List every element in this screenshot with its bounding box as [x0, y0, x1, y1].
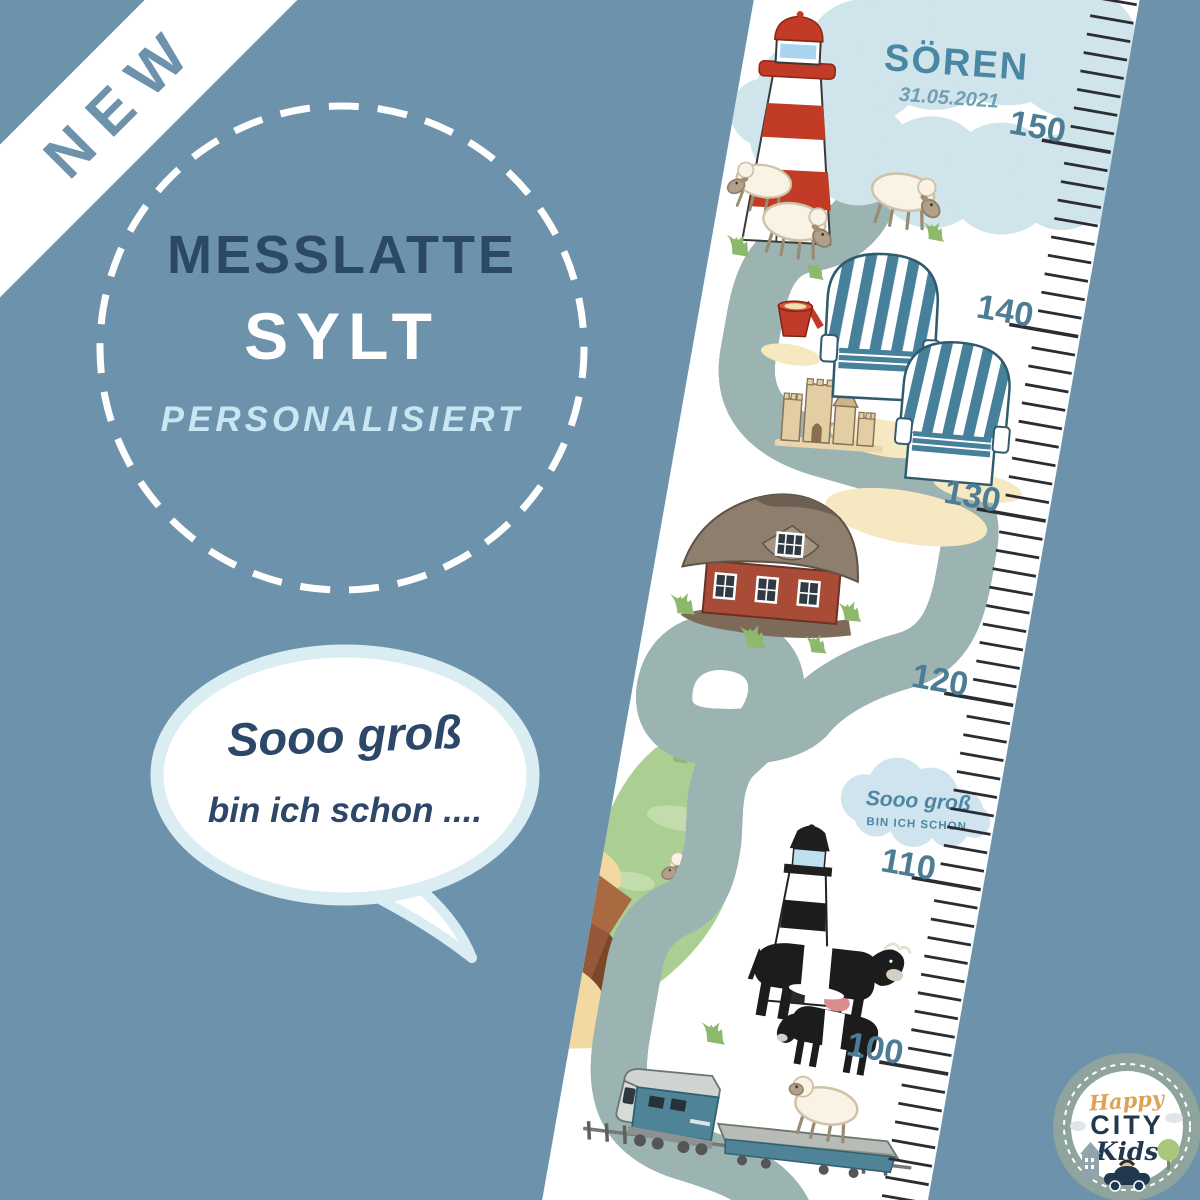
speech-bubble-line2: bin ich schon .... — [208, 791, 482, 830]
speech-bubble-body — [157, 651, 533, 899]
beach-chair-2 — [892, 338, 1017, 487]
ruler-number: 110 — [878, 841, 939, 888]
brand-logo: Happy CITY Kids — [1046, 1046, 1200, 1200]
title-block: MESSLATTE SYLT PERSONALISIERT — [112, 224, 572, 440]
growth-chart-strip: SÖREN 31.05.2021 — [531, 0, 1148, 1200]
logo-cloud-icon — [1070, 1121, 1086, 1131]
sand-bucket — [777, 300, 824, 338]
personalised-label: PERSONALISIERT — [112, 400, 572, 440]
product-image: MESSLATTE SYLT PERSONALISIERT NEW Sooo g… — [0, 0, 1200, 1200]
product-subtitle: SYLT — [112, 298, 572, 374]
ruler-number: 120 — [909, 657, 971, 704]
marker-cloud: Sooo groß BIN ICH SCHON — [834, 749, 999, 860]
logo-city-label: CITY — [1090, 1110, 1164, 1140]
product-title: MESSLATTE — [112, 224, 572, 286]
logo-cloud-icon — [1165, 1113, 1183, 1123]
growth-chart-art: SÖREN 31.05.2021 — [531, 0, 1148, 1200]
grass-tuft — [698, 1019, 728, 1044]
speech-bubble: Sooo groß bin ich schon .... — [140, 630, 560, 980]
ruler-number: 140 — [974, 288, 1036, 335]
speech-bubble-line1: Sooo groß — [226, 705, 463, 766]
ruler-number: 100 — [844, 1025, 906, 1072]
